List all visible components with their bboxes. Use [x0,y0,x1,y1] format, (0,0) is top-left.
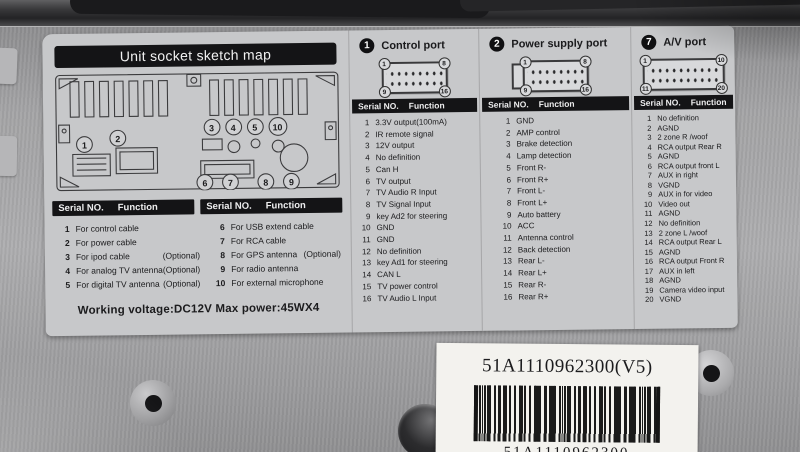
function-label: Function [691,97,727,107]
row-number: 7 [354,187,370,199]
row-function: Back detection [518,244,571,256]
part-number-text: 51A1110962300(V5) [436,355,698,379]
row-number: 10 [210,276,225,290]
row-number: 9 [210,262,225,276]
table-row: 5 For digital TV antenna (Optional) [55,276,200,292]
row-number: 5 [495,162,511,174]
row-number: 9 [636,190,652,200]
function-label: Function [118,202,158,213]
row-number: 8 [636,181,652,191]
pin-label: 1 [519,56,531,68]
row-function: No definition [376,152,421,164]
row-number: 11 [355,234,371,246]
row-number: 7 [495,186,511,198]
row-number: 4 [55,264,70,278]
control-port-header: 1 Control port [349,29,478,56]
row-function: Rear R- [518,279,546,291]
row-function: For ipod cable [76,249,130,264]
row-number: 2 [55,236,70,250]
row-function: Front R- [517,162,546,174]
row-number: 19 [637,286,653,296]
row-number: 5 [354,164,370,176]
rear-panel-photo: Unit socket sketch map [0,0,800,452]
row-function: RCA output front L [658,161,720,171]
row-number: 9 [354,211,370,223]
serial-header-bar: Serial NO. Function [52,199,194,216]
row-number: 14 [355,269,371,281]
row-number: 13 [496,256,512,268]
cable-function-tables: 1 For control cable 2 For power cable 3 … [52,216,343,296]
row-function: AGND [659,247,681,257]
row-number: 7 [210,234,225,248]
serial-header-bar: Serial NO. Function [634,95,733,110]
row-function: 2 zone L /woof [659,228,708,238]
function-label: Function [266,200,306,211]
row-function: Front L+ [517,197,547,209]
row-function: Rear R+ [518,291,548,303]
pin-label: 1 [378,58,390,70]
row-function: Auto battery [517,209,560,221]
row-optional-tag: (Optional) [303,247,340,261]
row-number: 4 [354,152,370,164]
row-function: No definition [657,113,699,123]
row-number: 4 [636,142,652,152]
row-function: AGND [658,209,680,219]
table-row: 16 TV Audio L Input [355,291,478,304]
row-number: 8 [354,199,370,211]
power-spec-footnote: Working voltage:DC12V Max power:45WX4 [53,302,343,318]
sketch-section: Unit socket sketch map [42,30,352,336]
row-function: For digital TV antenna [76,277,160,292]
row-optional-tag: (Optional) [163,262,200,276]
row-function: Antenna control [518,232,574,244]
table-row: 20 VGND [637,294,734,305]
table-row: 6 RCA output front L [636,161,733,172]
serial-no-label: Serial NO. [58,202,104,214]
power-port-table: 1 GND 2 AMP control 3 Brake detection 4 … [480,110,633,303]
cable-table-a: 1 For control cable 2 For power cable 3 … [52,217,202,295]
row-number: 3 [494,139,510,151]
row-number: 4 [495,151,511,163]
row-number: 5 [55,278,70,292]
row-number: 16 [496,291,512,303]
row-function: 3.3V output(100mA) [375,116,447,129]
row-number: 13 [355,258,371,270]
row-number: 17 [637,267,653,277]
row-function: VGND [659,295,681,305]
row-number: 12 [636,219,652,229]
port-title: A/V port [663,36,706,49]
av-port-header: 7 A/V port [631,26,734,52]
svg-text:5: 5 [252,123,257,133]
svg-text:7: 7 [228,178,233,188]
row-function: For RCA cable [231,233,286,248]
row-number: 6 [210,220,225,234]
row-number: 7 [636,171,652,181]
row-number: 5 [636,152,652,162]
pin-grid [647,63,719,86]
row-number: 3 [55,250,70,264]
row-function: Brake detection [516,138,572,150]
row-number: 15 [355,281,371,293]
rear-panel-sketch-svg: 3 4 5 10 1 2 6 7 [53,71,342,193]
row-function: ACC [517,221,534,233]
port-1-badge-icon: 1 [359,38,374,53]
serial-no-label: Serial NO. [206,201,252,213]
table-row: 8 For GPS antenna (Optional) [210,247,341,263]
row-function: No definition [377,245,422,257]
row-number: 10 [495,221,511,233]
row-function: AUX in left [659,266,695,276]
serial-no-label: Serial NO. [488,99,529,109]
function-label: Function [539,99,575,109]
row-function: TV power control [377,280,438,292]
row-function: Camera video input [659,285,724,295]
av-port-table: 1 No definition 2 AGND 3 2 zone R /woof … [632,109,737,305]
mounting-tab [0,48,18,85]
row-number: 18 [637,276,653,286]
table-row: 19 Camera video input [637,285,734,296]
row-number: 2 [494,127,510,139]
table-row: 4 RCA output Rear R [636,141,733,152]
svg-text:8: 8 [263,178,268,188]
svg-text:1: 1 [82,140,87,150]
screw-hole [130,380,176,426]
pin-label: 16 [579,84,591,96]
unit-sketch-diagram: 3 4 5 10 1 2 6 7 [53,71,340,197]
row-function: Rear L- [518,256,545,268]
svg-text:6: 6 [202,178,207,188]
row-function: key Ad1 for steering [377,257,448,270]
row-number: 13 [637,228,653,238]
screw-hole-center [703,365,720,382]
port-2-badge-icon: 2 [489,37,504,52]
row-function: AMP control [516,127,560,139]
row-number: 10 [636,200,652,210]
row-number: 12 [355,246,371,258]
pin-label: 9 [378,86,390,98]
row-function: GND [377,222,395,234]
row-number: 3 [354,141,370,153]
pin-grid [386,66,442,89]
av-port-section: 7 A/V port 1 10 11 20 Serial NO. Functio… [630,26,738,329]
serial-no-label: Serial NO. [358,101,399,111]
row-function: For USB extend cable [231,219,314,234]
pin-label: 8 [438,57,450,69]
part-number-label: 51A1110962300(V5) 51A1110962300 [435,343,698,452]
row-number: 8 [210,248,225,262]
row-function: For radio antenna [231,261,298,276]
control-port-section: 1 Control port 1 8 9 16 Serial NO. Funct… [348,29,482,333]
row-number: 11 [496,233,512,245]
pin-label: 16 [438,85,450,97]
row-function: CAN L [377,269,401,281]
row-function: GND [516,115,534,127]
row-function: GND [377,234,395,246]
control-port-table: 1 3.3V output(100mA) 2 IR remote signal … [350,112,481,305]
row-function: 12V output [376,140,415,152]
table-row: 10 For external microphone [210,275,341,291]
svg-text:4: 4 [231,123,236,133]
row-number: 2 [635,123,651,133]
pin-label: 9 [519,84,531,96]
row-number: 8 [495,197,511,209]
row-number: 9 [495,209,511,221]
row-function: RCA output Rear L [659,237,722,247]
row-number: 20 [637,295,653,305]
row-number: 6 [354,176,370,188]
svg-text:10: 10 [273,122,283,132]
row-function: TV Audio R Input [376,187,437,199]
pin-label: 10 [715,54,727,66]
port-title: Control port [381,39,445,52]
row-function: VGND [658,180,680,190]
table-row: 16 Rear R+ [496,290,630,303]
row-function: For power cable [76,235,137,250]
pin-grid [527,65,583,88]
port-title: Power supply port [511,37,607,50]
serial-header-bar: Serial NO. Function [200,198,342,215]
row-number: 15 [637,247,653,257]
row-function: No definition [658,218,700,228]
row-number: 14 [496,268,512,280]
row-function: key Ad2 for steering [376,210,447,223]
row-function: TV Signal Input [376,198,431,210]
row-function: Can H [376,164,399,176]
row-function: TV output [376,175,411,187]
row-function: For external microphone [231,275,323,290]
row-number: 12 [496,244,512,256]
svg-text:3: 3 [209,123,214,133]
left-table-headers: Serial NO. Function Serial NO. Function [52,198,342,217]
row-function: AUX in right [658,171,698,181]
barcode-caption-partial: 51A1110962300 [436,444,698,452]
row-function: For analog TV antenna [76,263,163,278]
pin-label: 1 [639,55,651,67]
row-number: 14 [637,238,653,248]
port-7-badge-icon: 7 [641,35,656,50]
row-number: 16 [355,293,371,305]
pin-label: 20 [715,82,727,94]
row-number: 1 [635,114,651,124]
row-function: AGND [657,123,679,133]
pin-label: 11 [639,83,651,95]
row-number: 6 [636,162,652,172]
spec-sticker: Unit socket sketch map [42,26,738,336]
pin-label: 8 [579,56,591,68]
row-function: RCA output Front R [659,256,725,266]
row-optional-tag: (Optional) [163,276,200,290]
row-function: TV Audio L Input [377,292,436,304]
barcode [474,385,660,443]
function-label: Function [409,100,445,110]
row-function: Front R+ [517,174,548,186]
control-port-connector-icon: 1 8 9 16 [381,61,447,94]
row-number: 1 [494,116,510,128]
table-row: 14 RCA output Rear L [637,237,734,248]
row-number: 15 [496,279,512,291]
power-port-header: 2 Power supply port [479,27,630,54]
row-number: 1 [353,117,369,129]
fins-right [210,79,308,116]
row-function: AGND [658,152,680,162]
row-function: Rear L+ [518,267,547,279]
row-number: 1 [54,222,69,236]
row-number: 2 [353,129,369,141]
row-number: 3 [635,133,651,143]
row-function: For GPS antenna [231,247,297,262]
serial-header-bar: Serial NO. Function [352,98,477,114]
serial-no-label: Serial NO. [640,97,681,107]
screw-hole-center [145,395,162,412]
row-function: AGND [659,276,681,286]
row-function: For control cable [75,221,138,236]
row-function: AUX in for video [658,189,712,199]
row-number: 6 [495,174,511,186]
row-number: 10 [355,223,371,235]
row-number: 11 [636,209,652,219]
table-row: 16 RCA output Front R [637,256,734,267]
row-function: RCA output Rear R [658,142,722,152]
cable-table-b: 6 For USB extend cable 7 For RCA cable 8… [208,216,344,294]
row-optional-tag: (Optional) [163,248,200,262]
row-function: Lamp detection [517,150,572,162]
row-function: Front L- [517,185,545,197]
row-function: IR remote signal [375,128,433,140]
av-port-connector-icon: 1 10 11 20 [642,58,724,91]
fins-left [70,81,168,118]
mounting-tab [0,136,17,176]
power-port-connector-icon: 1 8 9 16 [522,60,588,93]
row-function: Video out [658,199,690,209]
sketch-title: Unit socket sketch map [54,43,336,68]
row-number: 16 [637,257,653,267]
svg-text:2: 2 [115,134,120,144]
svg-text:9: 9 [289,177,294,187]
power-supply-port-section: 2 Power supply port 1 8 9 16 Serial NO. … [478,27,634,331]
